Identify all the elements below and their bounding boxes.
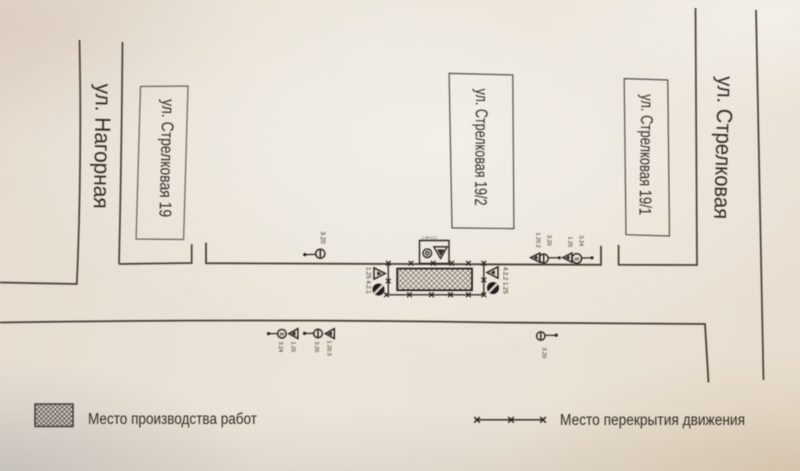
svg-text:3.24: 3.24: [277, 342, 283, 353]
svg-text:ул. Нагорная: ул. Нагорная: [89, 83, 116, 208]
svg-text:1.20.2: 1.20.2: [535, 233, 541, 248]
svg-text:Место производства работ: Место производства работ: [88, 411, 257, 428]
svg-text:ул. Стрелковая: ул. Стрелковая: [709, 76, 738, 220]
svg-text:ул. Стрелковая 19/2: ул. Стрелковая 19/2: [471, 88, 491, 205]
svg-text:3.20: 3.20: [319, 232, 326, 245]
svg-text:3.20: 3.20: [546, 235, 552, 246]
svg-text:ул. Стрелковая 19/1: ул. Стрелковая 19/1: [635, 94, 656, 215]
svg-text:1.25 4.2.1: 1.25 4.2.1: [422, 236, 437, 240]
svg-text:1.25: 1.25: [567, 237, 573, 248]
svg-text:4.2.2 1.25: 4.2.2 1.25: [502, 267, 508, 294]
svg-text:40: 40: [279, 331, 284, 336]
svg-text:1.25 4.2.1: 1.25 4.2.1: [365, 267, 371, 294]
svg-text:ул. Стрелковая 19: ул. Стрелковая 19: [155, 99, 177, 217]
svg-text:Место перекрытия движения: Место перекрытия движения: [560, 412, 745, 429]
svg-text:1.20.3: 1.20.3: [326, 341, 332, 356]
svg-text:1.25: 1.25: [290, 342, 296, 353]
svg-text:3.20: 3.20: [313, 342, 319, 353]
svg-text:3.20: 3.20: [541, 348, 547, 359]
svg-text:40: 40: [574, 256, 580, 261]
svg-text:3.24: 3.24: [578, 236, 584, 247]
